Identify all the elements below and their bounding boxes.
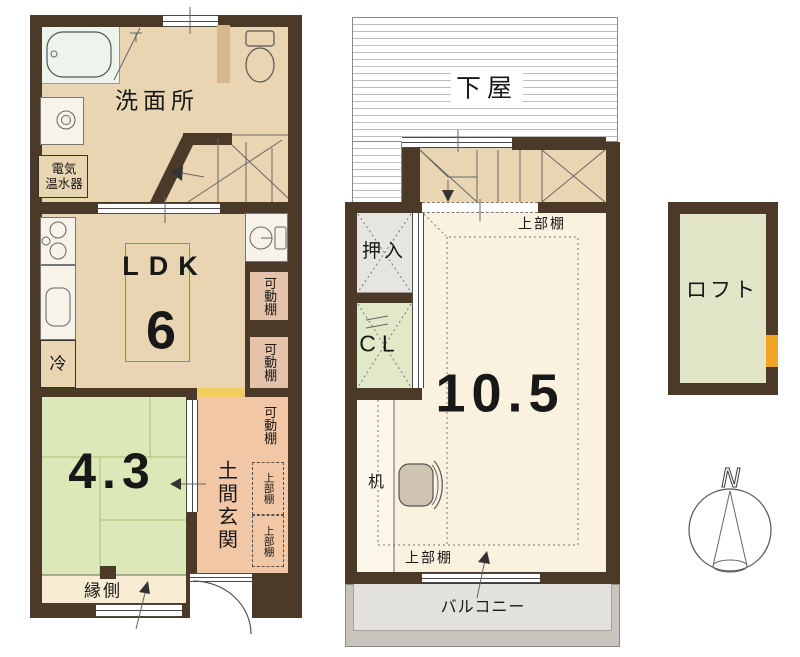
washer-drum-icon: [57, 111, 75, 129]
label-loft: ロフト: [686, 278, 758, 304]
label-entrance: 土間玄関: [213, 460, 238, 552]
bathtub-icon: [47, 28, 142, 80]
label-upper-shelf-2: 上部棚: [261, 525, 274, 557]
label-tatami-size: 4.3: [68, 440, 156, 503]
label-room-size: 10.5: [435, 360, 564, 428]
label-water-heater-1: 電気: [51, 162, 76, 178]
label-movable-shelf-2: 可動棚: [261, 343, 277, 382]
label-desk: 机: [368, 473, 384, 493]
label-closet: 押入: [362, 240, 406, 264]
window-ticks: [165, 7, 480, 223]
stove-burners-icon: [42, 222, 66, 259]
label-upper-shelf-1: 上部棚: [261, 472, 274, 504]
label-movable-shelf-1: 可動棚: [261, 277, 277, 316]
label-washroom: 洗面所: [115, 87, 199, 116]
desk-chair-icon: [399, 461, 442, 509]
entry-arrow-veranda: [136, 581, 150, 629]
label-fridge: 冷: [50, 353, 67, 374]
entry-arrow-tatami: [170, 478, 206, 490]
entrance-door-arc: [193, 581, 251, 634]
entry-arrow-balcony: [477, 551, 490, 598]
compass: N: [689, 464, 771, 572]
floor-plan-canvas: N 洗面所 電気 温水器 LDK 6 冷 可動棚 可動棚 可動棚 4.3 土間玄…: [0, 0, 800, 657]
label-lower-roof: 下屋: [451, 72, 523, 105]
label-water-heater-2: 温水器: [45, 177, 83, 193]
label-balcony: バルコニー: [441, 598, 526, 618]
label-movable-shelf-3: 可動棚: [261, 406, 277, 445]
label-closet-cl: CL: [359, 330, 400, 359]
label-ldk-size: 6: [146, 297, 176, 365]
toilet-icon-washroom: [246, 31, 274, 82]
label-upper-shelf-bottom: 上部棚: [405, 549, 453, 567]
toilet-icon-ldk: [250, 227, 286, 249]
veranda-wall-stub: [100, 566, 116, 579]
stairs-2f-lines: [420, 150, 605, 236]
sink-bowl-icon: [46, 288, 70, 326]
label-veranda: 縁側: [84, 580, 122, 601]
compass-north-label: N: [721, 464, 740, 494]
label-upper-shelf-top: 上部棚: [518, 215, 566, 233]
label-ldk: LDK: [122, 250, 208, 284]
stairs-1f: [150, 133, 288, 202]
